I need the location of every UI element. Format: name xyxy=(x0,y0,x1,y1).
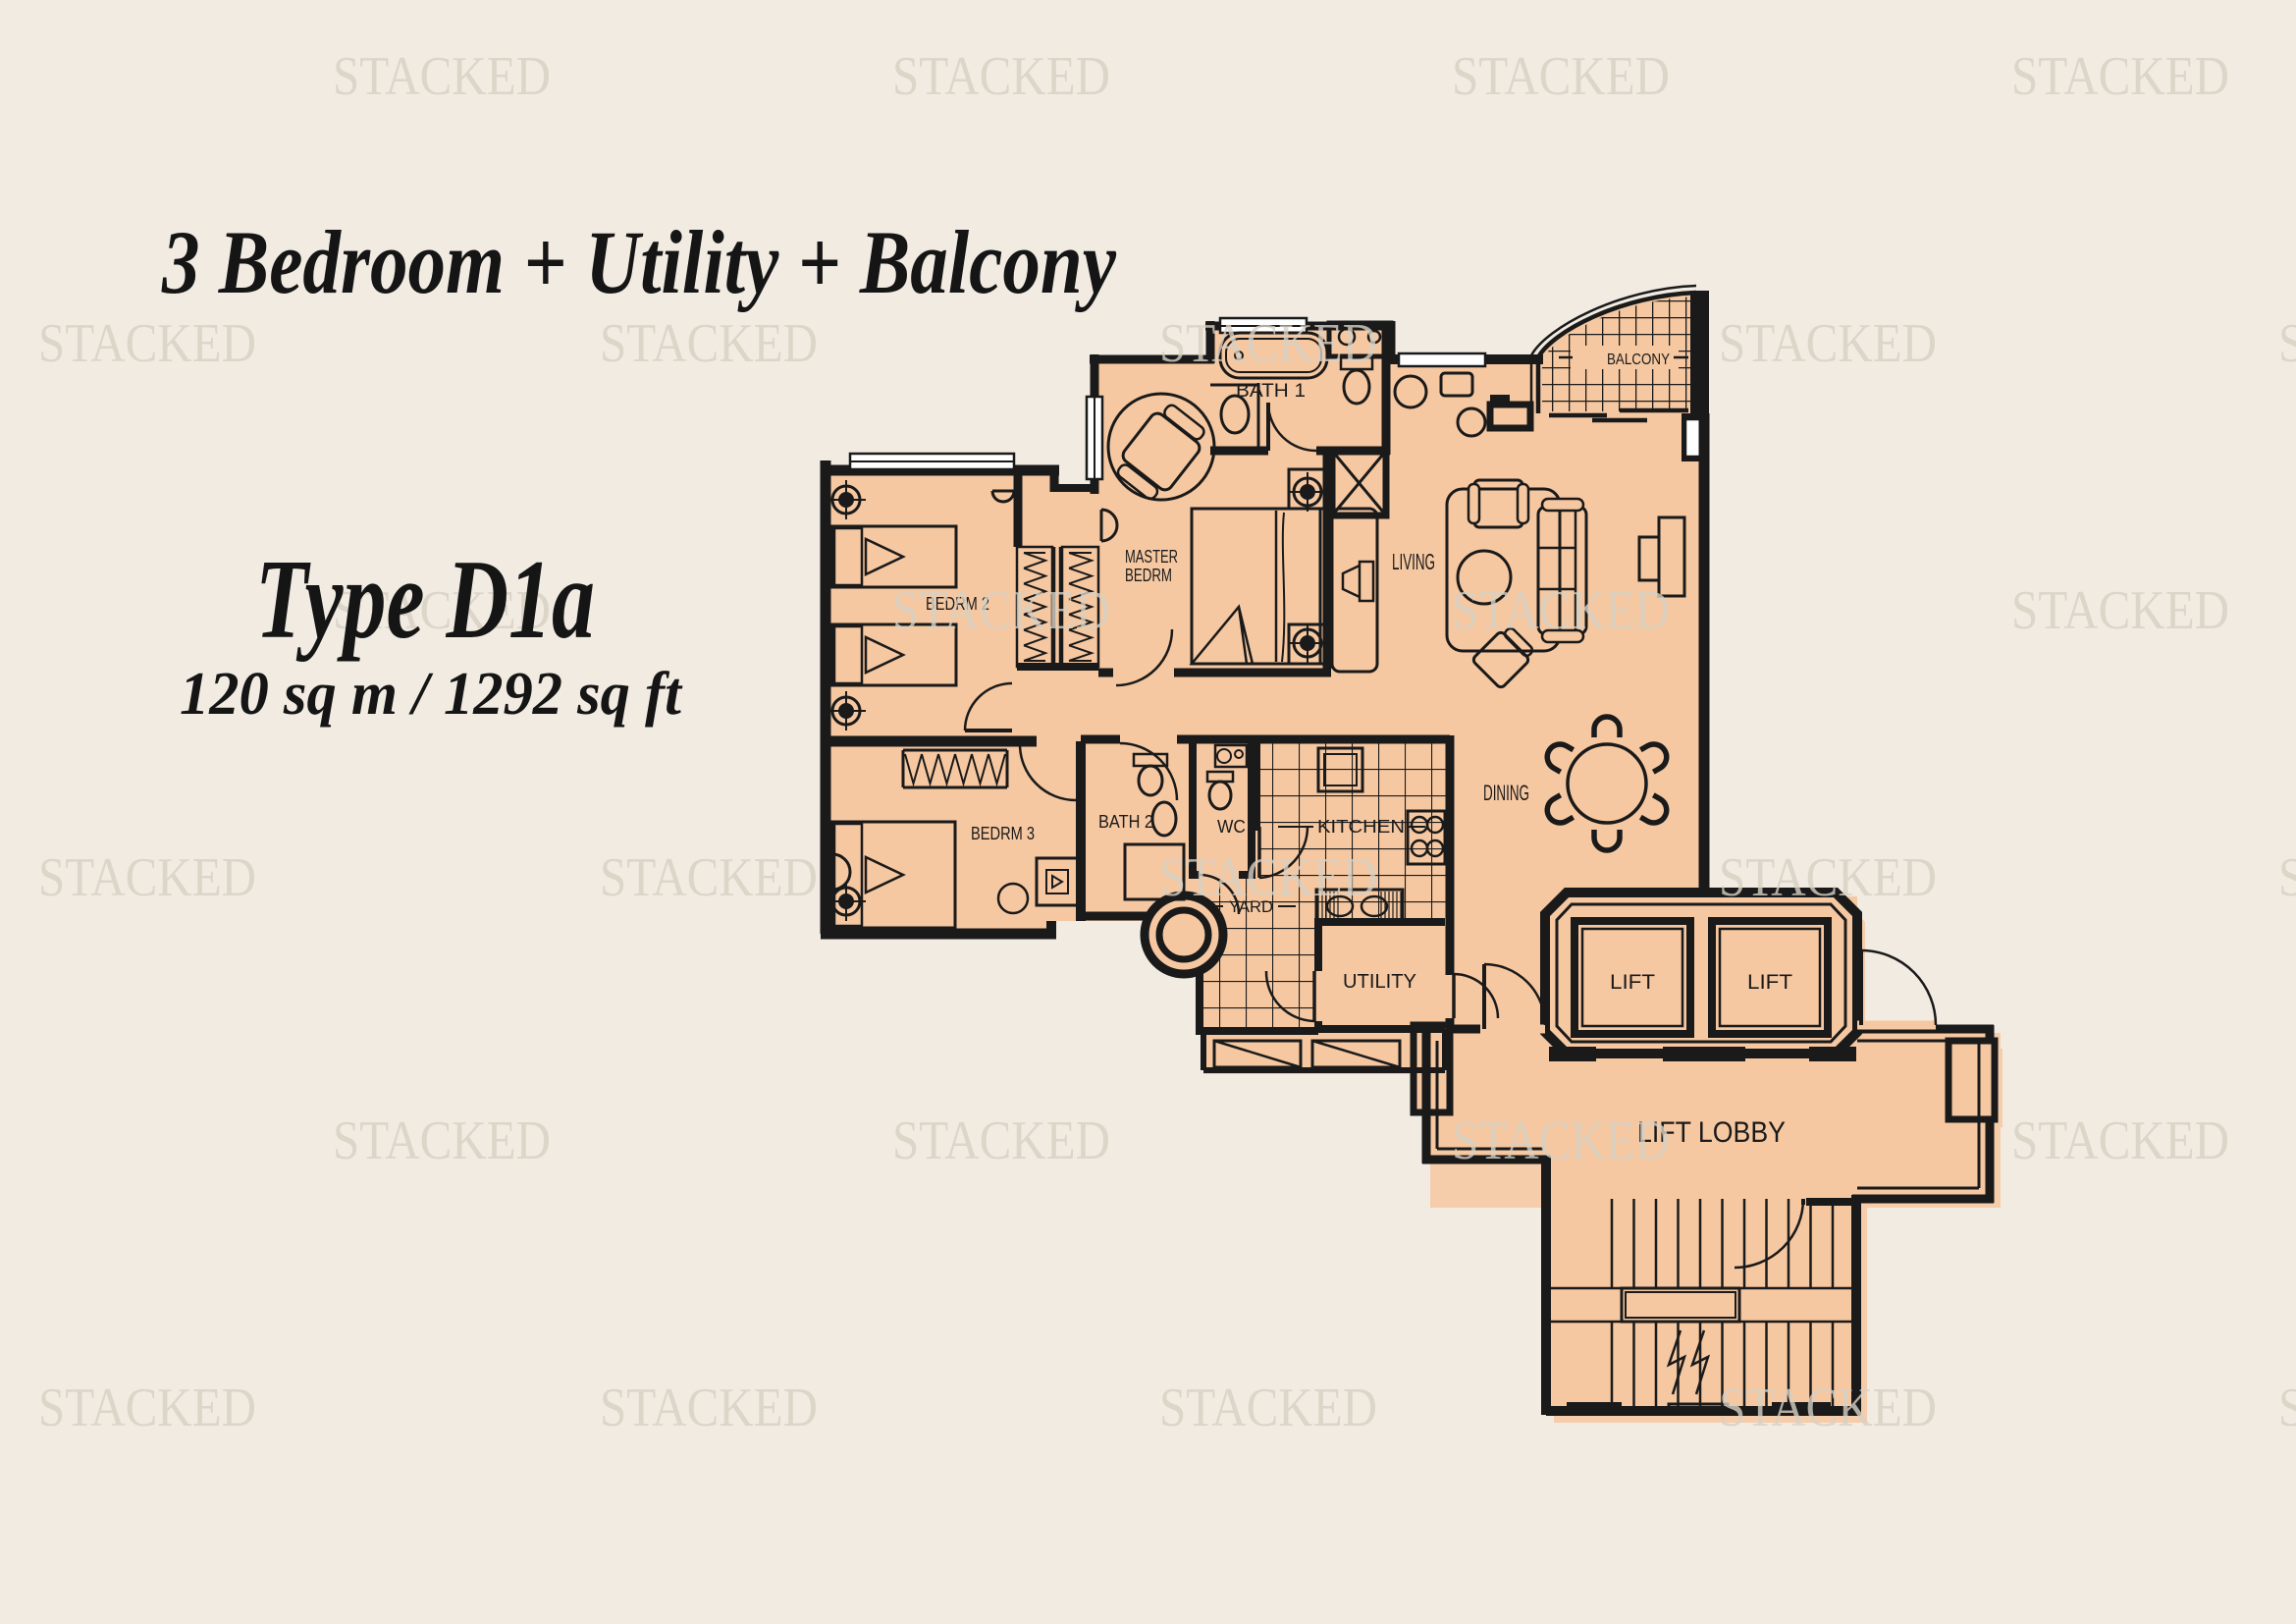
svg-text:STACKED: STACKED xyxy=(2011,1110,2229,1171)
svg-text:UTILITY: UTILITY xyxy=(1343,971,1416,993)
svg-text:BATH 2: BATH 2 xyxy=(1098,812,1153,832)
svg-text:STACKED: STACKED xyxy=(892,46,1110,107)
svg-text:LIFT: LIFT xyxy=(1610,971,1655,994)
svg-text:STACKED: STACKED xyxy=(2011,46,2229,107)
svg-text:BEDRM: BEDRM xyxy=(1125,566,1172,585)
svg-text:Type D1a: Type D1a xyxy=(255,537,595,663)
svg-text:BEDRM 3: BEDRM 3 xyxy=(971,824,1035,843)
svg-text:STACKED: STACKED xyxy=(1719,1378,1937,1438)
svg-text:STACKED: STACKED xyxy=(38,847,256,908)
svg-text:STACKED: STACKED xyxy=(600,1378,818,1438)
svg-text:STACKED: STACKED xyxy=(2278,847,2296,908)
svg-text:STACKED: STACKED xyxy=(1719,847,1937,908)
svg-text:STACKED: STACKED xyxy=(1719,313,1937,374)
svg-text:STACKED: STACKED xyxy=(1159,1378,1377,1438)
svg-text:WC: WC xyxy=(1217,817,1246,837)
svg-text:STACKED: STACKED xyxy=(333,1110,551,1171)
svg-text:STACKED: STACKED xyxy=(600,847,818,908)
svg-text:STACKED: STACKED xyxy=(1159,847,1377,908)
svg-text:STACKED: STACKED xyxy=(892,1110,1110,1171)
svg-text:STACKED: STACKED xyxy=(38,313,256,374)
svg-text:STACKED: STACKED xyxy=(1452,46,1670,107)
svg-text:STACKED: STACKED xyxy=(600,313,818,374)
svg-text:STACKED: STACKED xyxy=(1159,313,1377,374)
svg-text:STACKED: STACKED xyxy=(333,46,551,107)
svg-text:BATH 1: BATH 1 xyxy=(1236,381,1306,402)
svg-text:STACKED: STACKED xyxy=(1452,580,1670,641)
svg-text:STACKED: STACKED xyxy=(2278,313,2296,374)
svg-text:120 sq m / 1292 sq ft: 120 sq m / 1292 sq ft xyxy=(180,661,683,728)
svg-text:STACKED: STACKED xyxy=(2011,580,2229,641)
svg-text:LIVING: LIVING xyxy=(1392,549,1435,574)
svg-text:STACKED: STACKED xyxy=(2278,1378,2296,1438)
svg-text:STACKED: STACKED xyxy=(892,580,1110,641)
svg-text:STACKED: STACKED xyxy=(38,1378,256,1438)
svg-text:STACKED: STACKED xyxy=(1452,1110,1670,1171)
svg-text:MASTER: MASTER xyxy=(1125,547,1178,567)
svg-text:DINING: DINING xyxy=(1483,781,1529,805)
svg-text:3 Bedroom + Utility + Balcony: 3 Bedroom + Utility + Balcony xyxy=(161,212,1117,312)
svg-text:KITCHEN: KITCHEN xyxy=(1317,817,1405,837)
svg-text:BALCONY: BALCONY xyxy=(1607,352,1670,368)
svg-text:LIFT: LIFT xyxy=(1747,971,1792,994)
